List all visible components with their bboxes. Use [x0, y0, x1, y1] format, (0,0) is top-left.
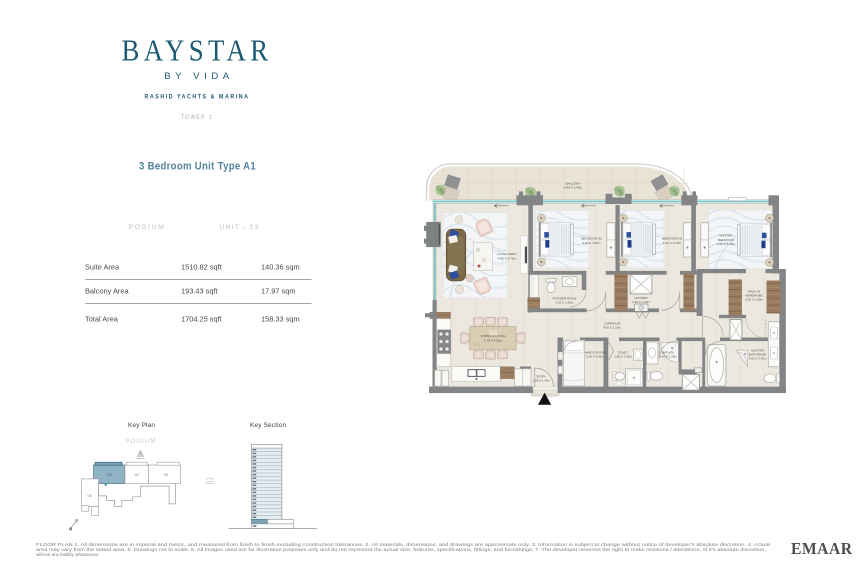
svg-text:3 Bedroom Unit Type A1: 3 Bedroom Unit Type A1 [139, 161, 256, 173]
svg-text:3.00 X 2.40m: 3.00 X 2.40m [749, 357, 767, 361]
svg-text:N: N [69, 527, 72, 532]
svg-text:05: 05 [164, 472, 169, 477]
svg-text:2.00 X 2.60m: 2.00 X 2.60m [586, 355, 604, 359]
svg-text:Key Plan: Key Plan [128, 422, 155, 429]
svg-text:4.90 X 4.70m: 4.90 X 4.70m [498, 256, 517, 260]
svg-text:4.05 X 1.20m: 4.05 X 1.20m [603, 326, 621, 330]
svg-text:BY VIDA: BY VIDA [164, 71, 234, 82]
svg-text:03: 03 [107, 472, 112, 477]
svg-text:158.33 sqm: 158.33 sqm [261, 315, 300, 324]
svg-text:2.90 X 1.60m: 2.90 X 1.60m [745, 298, 763, 302]
svg-text:Balcony Area: Balcony Area [85, 287, 129, 296]
svg-text:BAYSTAR: BAYSTAR [122, 33, 273, 68]
svg-text:1.40 X 1.10m: 1.40 X 1.10m [632, 300, 650, 304]
svg-text:9.40 X 1.40m: 9.40 X 1.40m [564, 186, 583, 190]
svg-text:17.97 sqm: 17.97 sqm [261, 287, 296, 296]
svg-text:1.85 X 1.40m: 1.85 X 1.40m [533, 378, 551, 382]
svg-text:1704.25 sqft: 1704.25 sqft [181, 315, 222, 324]
svg-text:1510.82 sqft: 1510.82 sqft [181, 263, 222, 272]
svg-text:06: 06 [87, 493, 92, 498]
svg-text:193.43 sqft: 193.43 sqft [181, 287, 218, 296]
svg-text:Suite Area: Suite Area [85, 263, 120, 272]
svg-text:UNIT - 03: UNIT - 03 [219, 224, 259, 231]
svg-text:Key Section: Key Section [250, 422, 287, 429]
svg-text:5.70 X 4.20m: 5.70 X 4.20m [484, 338, 503, 342]
svg-text:without any liability whatsoev: without any liability whatsoever. [36, 552, 99, 557]
svg-text:PODIUM: PODIUM [129, 224, 166, 231]
svg-text:04: 04 [135, 472, 140, 477]
svg-text:4.20 X 3.70m: 4.20 X 3.70m [663, 241, 682, 245]
svg-text:Total Area: Total Area [85, 315, 119, 324]
svg-text:1.50 X 1.90m: 1.50 X 1.90m [556, 301, 574, 305]
svg-text:140.36 sqm: 140.36 sqm [261, 263, 300, 272]
svg-text:RASHID YACHTS & MARINA: RASHID YACHTS & MARINA [145, 94, 250, 101]
svg-text:area may vary from the stated: area may vary from the stated area. 5. D… [36, 547, 766, 552]
svg-text:EMAAR: EMAAR [791, 539, 853, 558]
svg-text:PODIUM: PODIUM [125, 438, 156, 445]
svg-text:4.20 X 3.90m: 4.20 X 3.90m [582, 241, 601, 245]
svg-text:4.50 X 4.20m: 4.50 X 4.20m [717, 242, 736, 246]
svg-text:1.50 X 1.90m: 1.50 X 1.90m [614, 355, 632, 359]
svg-text:TOWER 1: TOWER 1 [181, 114, 213, 121]
svg-text:2.40 X 2.20m: 2.40 X 2.20m [659, 355, 677, 359]
